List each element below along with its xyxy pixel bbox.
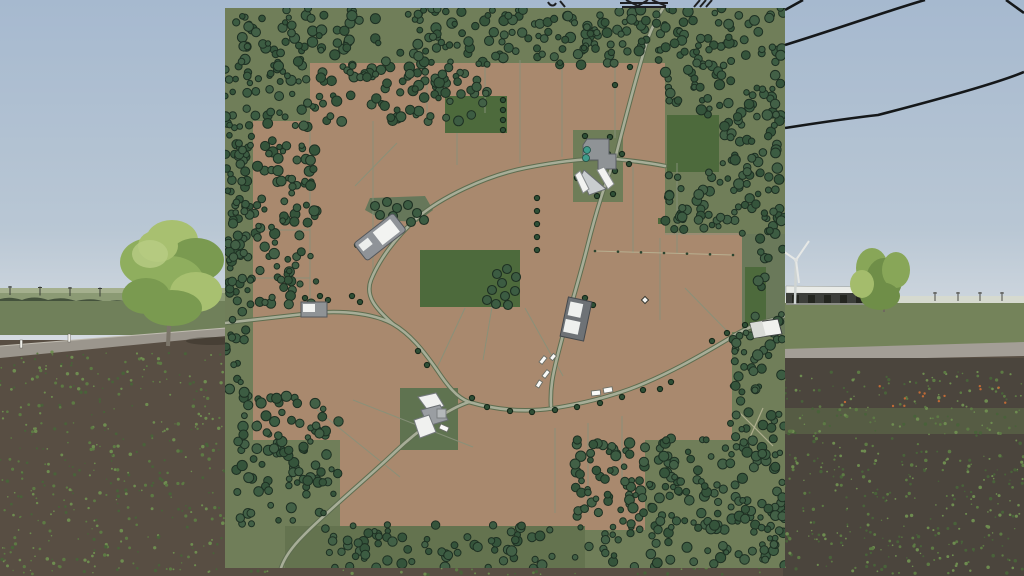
roadside-tree [724, 330, 729, 335]
farmland-field [253, 330, 732, 440]
grass-field [667, 115, 719, 172]
roadside-tree [534, 221, 539, 226]
roadside-tree [302, 295, 307, 300]
flower-speck [903, 405, 905, 407]
silo-marker [584, 147, 591, 154]
roadside-tree [500, 97, 505, 102]
pylon-silhouette [700, 0, 706, 7]
roadside-tree [484, 404, 489, 409]
roadside-tree [574, 404, 579, 409]
roadside-tree [619, 394, 624, 399]
roadside-tree [612, 82, 617, 87]
map-overlay[interactable] [225, 8, 785, 568]
building-roadside-small [301, 302, 327, 317]
power-cable [785, 72, 1024, 128]
vehicle-marker [603, 387, 613, 393]
flower-speck [918, 391, 920, 393]
flower-speck [979, 388, 981, 390]
roadside-tree [627, 64, 632, 69]
flower-speck [892, 405, 894, 407]
roadside-tree [500, 127, 505, 132]
pylon-silhouette [560, 1, 565, 7]
silo-marker [583, 155, 590, 162]
flower-speck [923, 392, 925, 394]
roadside-tree [657, 386, 662, 391]
roadside-tree [500, 117, 505, 122]
roadside-tree [357, 299, 362, 304]
roadside-tree [610, 191, 615, 196]
roadside-tree [529, 409, 534, 414]
roadside-tree [507, 408, 512, 413]
roadside-tree [534, 208, 539, 213]
pylon-silhouette [548, 2, 556, 6]
power-cable [1006, 0, 1024, 13]
flower-speck [943, 395, 945, 397]
roadside-tree [552, 407, 557, 412]
roadside-tree [640, 387, 645, 392]
roadside-tree [534, 234, 539, 239]
pylon-silhouette [706, 0, 712, 7]
right-horizon [783, 292, 1024, 576]
roadside-tree [742, 322, 747, 327]
roadside-tree [500, 107, 505, 112]
roadside-tree [626, 161, 631, 166]
flower-speck [938, 400, 940, 402]
roadside-tree [415, 348, 420, 353]
power-cable [785, 0, 803, 10]
roadside-tree [424, 362, 429, 367]
roadside-tree [597, 400, 602, 405]
flower-speck [844, 401, 846, 403]
flower-speck [879, 385, 881, 387]
roadside-tree [534, 195, 539, 200]
roadside-tree [349, 293, 354, 298]
power-cable [785, 0, 925, 45]
roadside-tree [709, 338, 714, 343]
roadside-tree [317, 293, 322, 298]
flower-speck [922, 395, 924, 397]
flower-speck [979, 385, 981, 387]
roadside-tree [619, 151, 624, 156]
flower-speck [997, 386, 999, 388]
building-east-barn [750, 319, 782, 338]
roadside-tree [668, 379, 673, 384]
flower-speck [904, 397, 906, 399]
road-post [20, 340, 23, 348]
roadside-tree [534, 247, 539, 252]
pda-map[interactable] [225, 8, 785, 568]
game-scene [0, 0, 1024, 576]
pylon-silhouette [694, 0, 700, 7]
road-post [68, 334, 71, 342]
roadside-tree [582, 133, 587, 138]
roadside-tree [469, 395, 474, 400]
flower-speck [1004, 402, 1006, 404]
roadside-tree [594, 193, 599, 198]
vehicle-marker [591, 390, 600, 396]
